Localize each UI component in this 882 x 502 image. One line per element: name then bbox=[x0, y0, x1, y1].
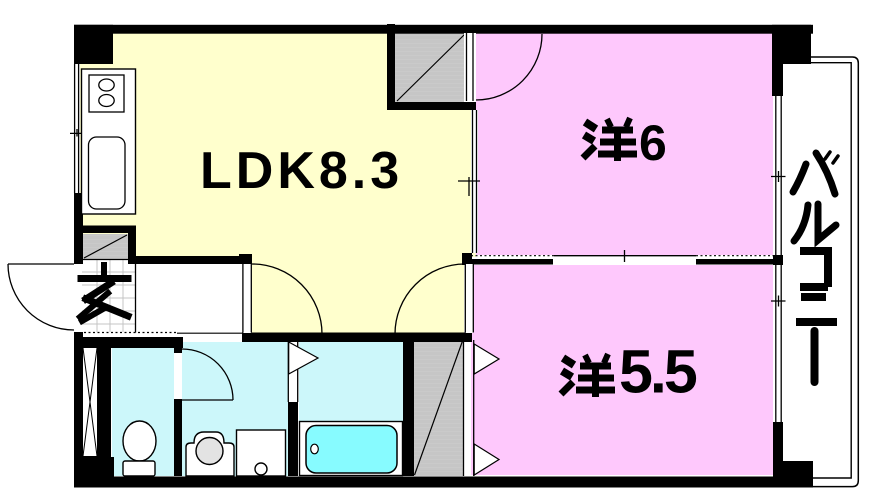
svg-text:5.5: 5.5 bbox=[619, 338, 697, 406]
svg-text:6: 6 bbox=[639, 115, 667, 171]
svg-text:LDK8.3: LDK8.3 bbox=[200, 142, 403, 200]
